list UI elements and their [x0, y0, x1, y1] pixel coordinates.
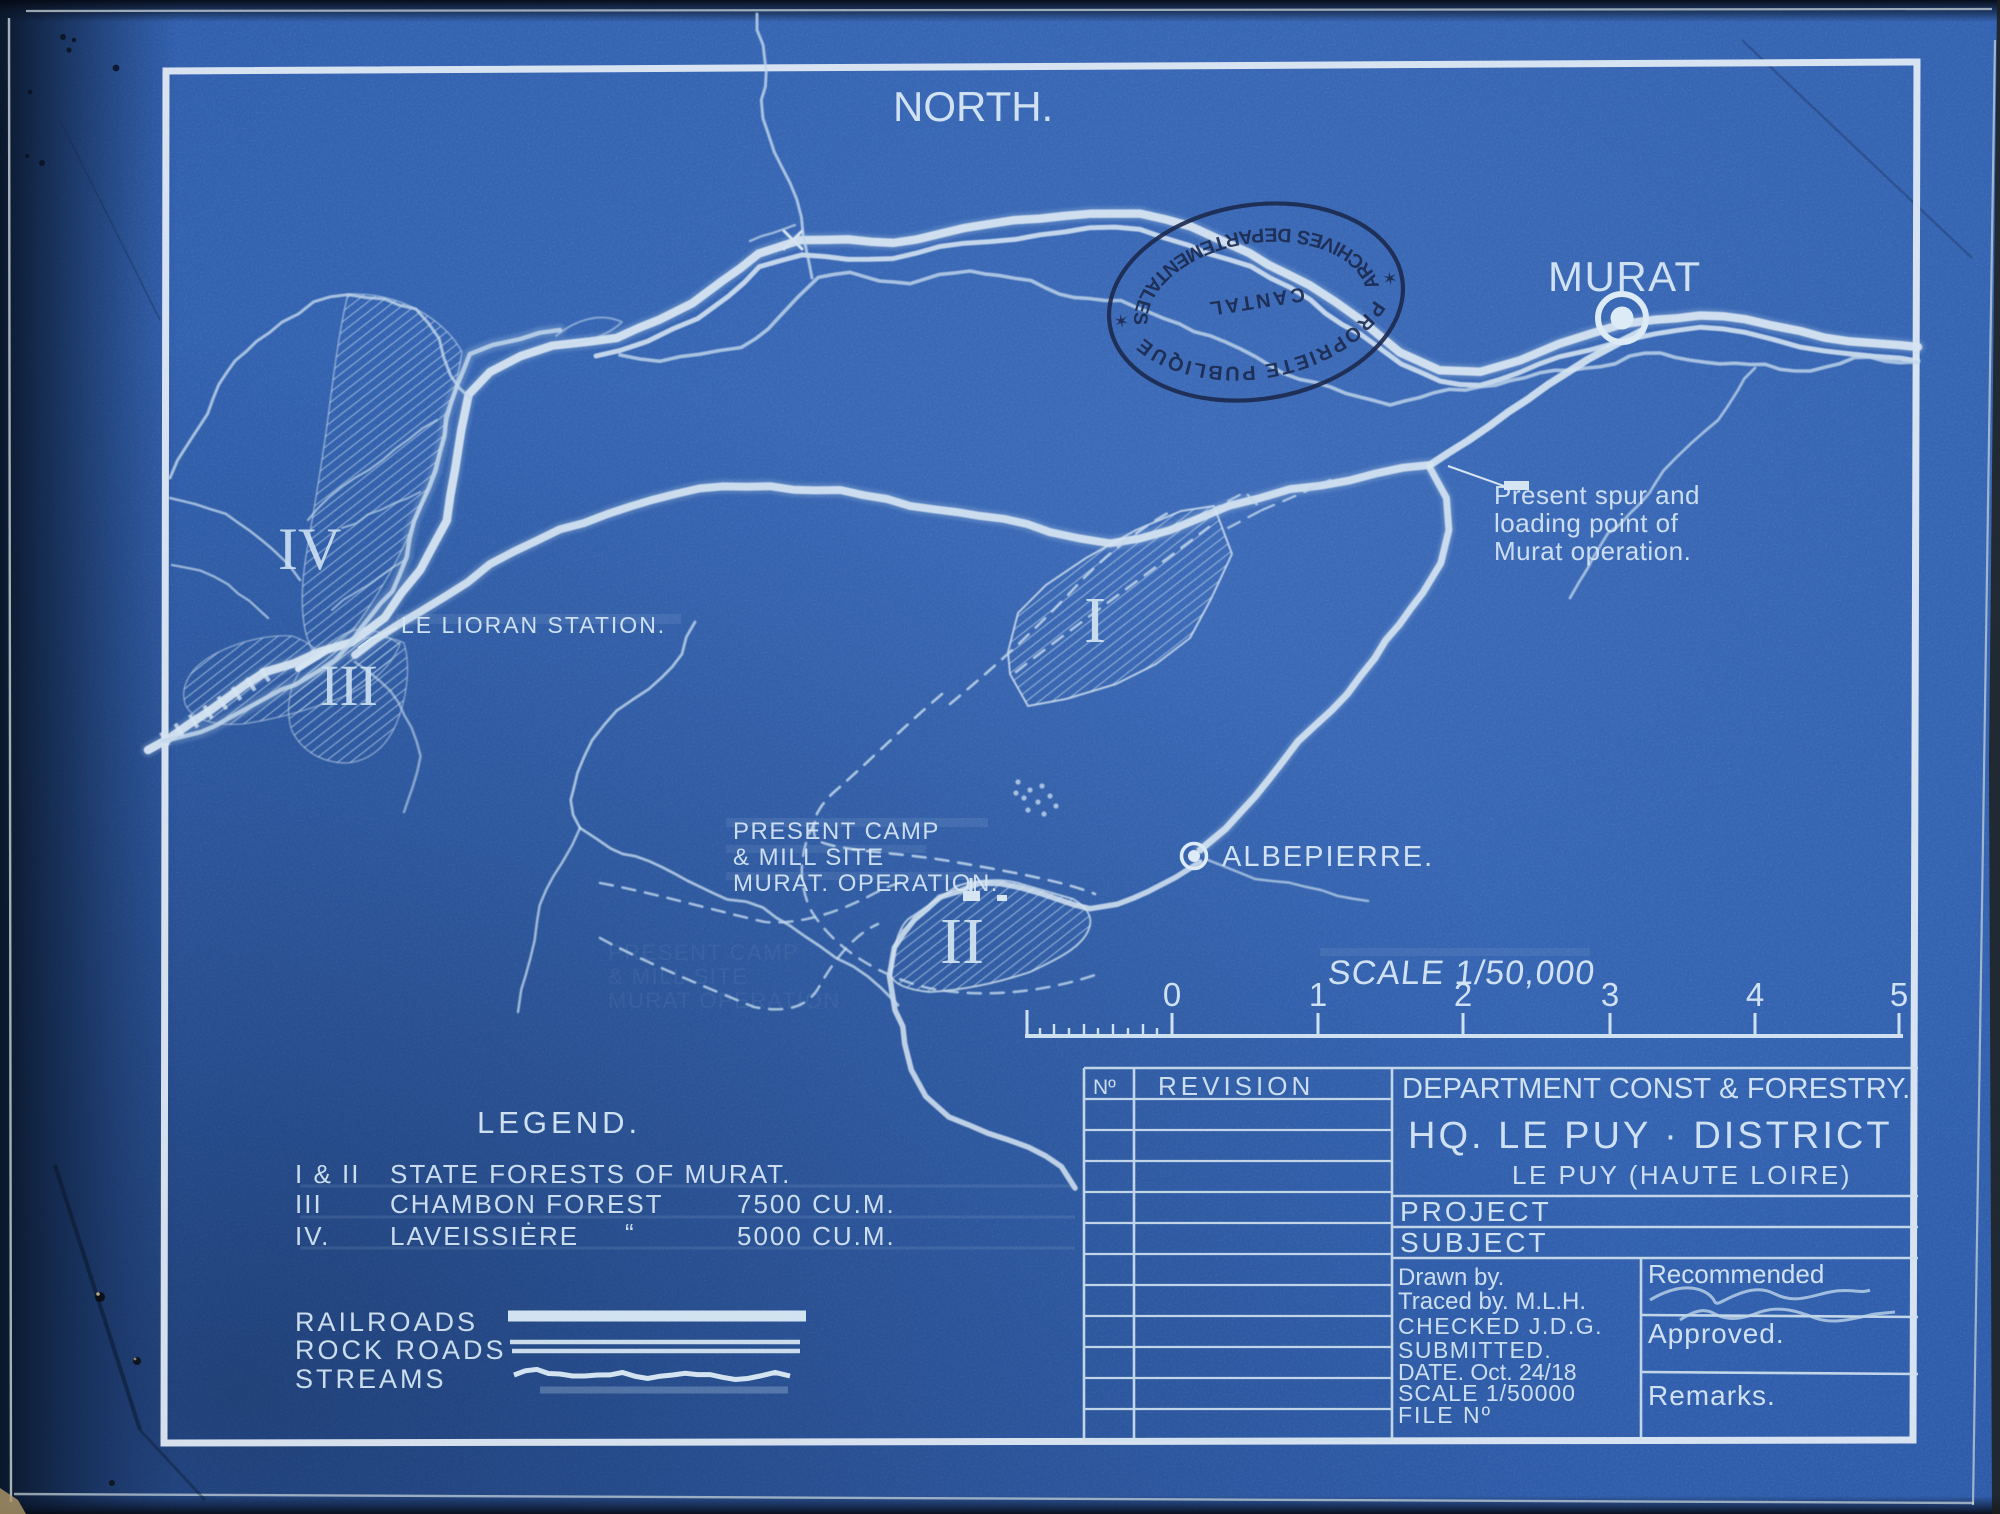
svg-text:✶: ✶ — [1381, 267, 1399, 289]
svg-text:Nº: Nº — [1093, 1076, 1116, 1099]
svg-text:MURAT: MURAT — [1548, 253, 1702, 300]
svg-text:LE PUY (HAUTE LOIRE): LE PUY (HAUTE LOIRE) — [1512, 1160, 1852, 1190]
svg-text:Remarks.: Remarks. — [1648, 1380, 1776, 1411]
svg-text:II: II — [940, 905, 984, 978]
svg-text:III: III — [320, 653, 378, 718]
svg-text:MURAT OPERATION: MURAT OPERATION — [608, 988, 841, 1013]
svg-text:MURAT. OPERATION.: MURAT. OPERATION. — [733, 870, 999, 897]
svg-text:SUBJECT: SUBJECT — [1400, 1227, 1549, 1258]
svg-text:5: 5 — [1890, 976, 1908, 1013]
svg-text:Murat operation.: Murat operation. — [1494, 536, 1691, 566]
svg-text:STREAMS: STREAMS — [295, 1364, 447, 1394]
svg-text:PRESENT CAMP: PRESENT CAMP — [733, 818, 940, 845]
svg-text:III: III — [295, 1189, 323, 1219]
svg-text:2: 2 — [1454, 976, 1472, 1013]
svg-text:REVISION: REVISION — [1158, 1071, 1314, 1101]
svg-text:I: I — [1084, 584, 1106, 657]
svg-text:3: 3 — [1601, 976, 1619, 1013]
svg-text:Present spur and: Present spur and — [1494, 480, 1700, 510]
svg-text:Recommended: Recommended — [1648, 1259, 1824, 1289]
svg-text:“: “ — [625, 1218, 634, 1248]
svg-text:Drawn by.: Drawn by. — [1398, 1264, 1504, 1291]
svg-text:PRESENT CAMP: PRESENT CAMP — [608, 940, 799, 965]
svg-text:Traced by. M.L.H.: Traced by. M.L.H. — [1398, 1288, 1586, 1315]
svg-text:LEGEND.: LEGEND. — [477, 1105, 641, 1140]
svg-text:0: 0 — [1163, 976, 1181, 1013]
svg-text:FILE Nº: FILE Nº — [1398, 1402, 1492, 1428]
svg-text:DEPARTMENT CONST & FORESTRY.: DEPARTMENT CONST & FORESTRY. — [1402, 1073, 1910, 1105]
svg-text:IV: IV — [278, 516, 341, 582]
svg-text:ALBEPIERRE.: ALBEPIERRE. — [1222, 841, 1434, 873]
svg-text:PROJECT: PROJECT — [1400, 1196, 1552, 1227]
svg-text:CHECKED J.D.G.: CHECKED J.D.G. — [1398, 1313, 1603, 1339]
svg-text:loading point of: loading point of — [1494, 508, 1679, 538]
svg-text:NORTH.: NORTH. — [893, 83, 1053, 130]
svg-text:Approved.: Approved. — [1648, 1318, 1785, 1349]
svg-text:HQ. LE PUY · DISTRICT: HQ. LE PUY · DISTRICT — [1408, 1115, 1893, 1157]
svg-text:ROCK ROADS: ROCK ROADS — [295, 1335, 507, 1365]
svg-text:CHAMBON FOREST: CHAMBON FOREST — [390, 1189, 664, 1219]
svg-text:7500 CU.M.: 7500 CU.M. — [737, 1189, 896, 1219]
svg-text:✶: ✶ — [1112, 309, 1130, 331]
svg-text:& MILL SITE: & MILL SITE — [608, 964, 748, 989]
svg-text:4: 4 — [1746, 976, 1764, 1013]
svg-text:& MILL SITE: & MILL SITE — [733, 844, 885, 871]
svg-text:RAILROADS: RAILROADS — [295, 1307, 478, 1337]
svg-text:1: 1 — [1309, 976, 1327, 1013]
